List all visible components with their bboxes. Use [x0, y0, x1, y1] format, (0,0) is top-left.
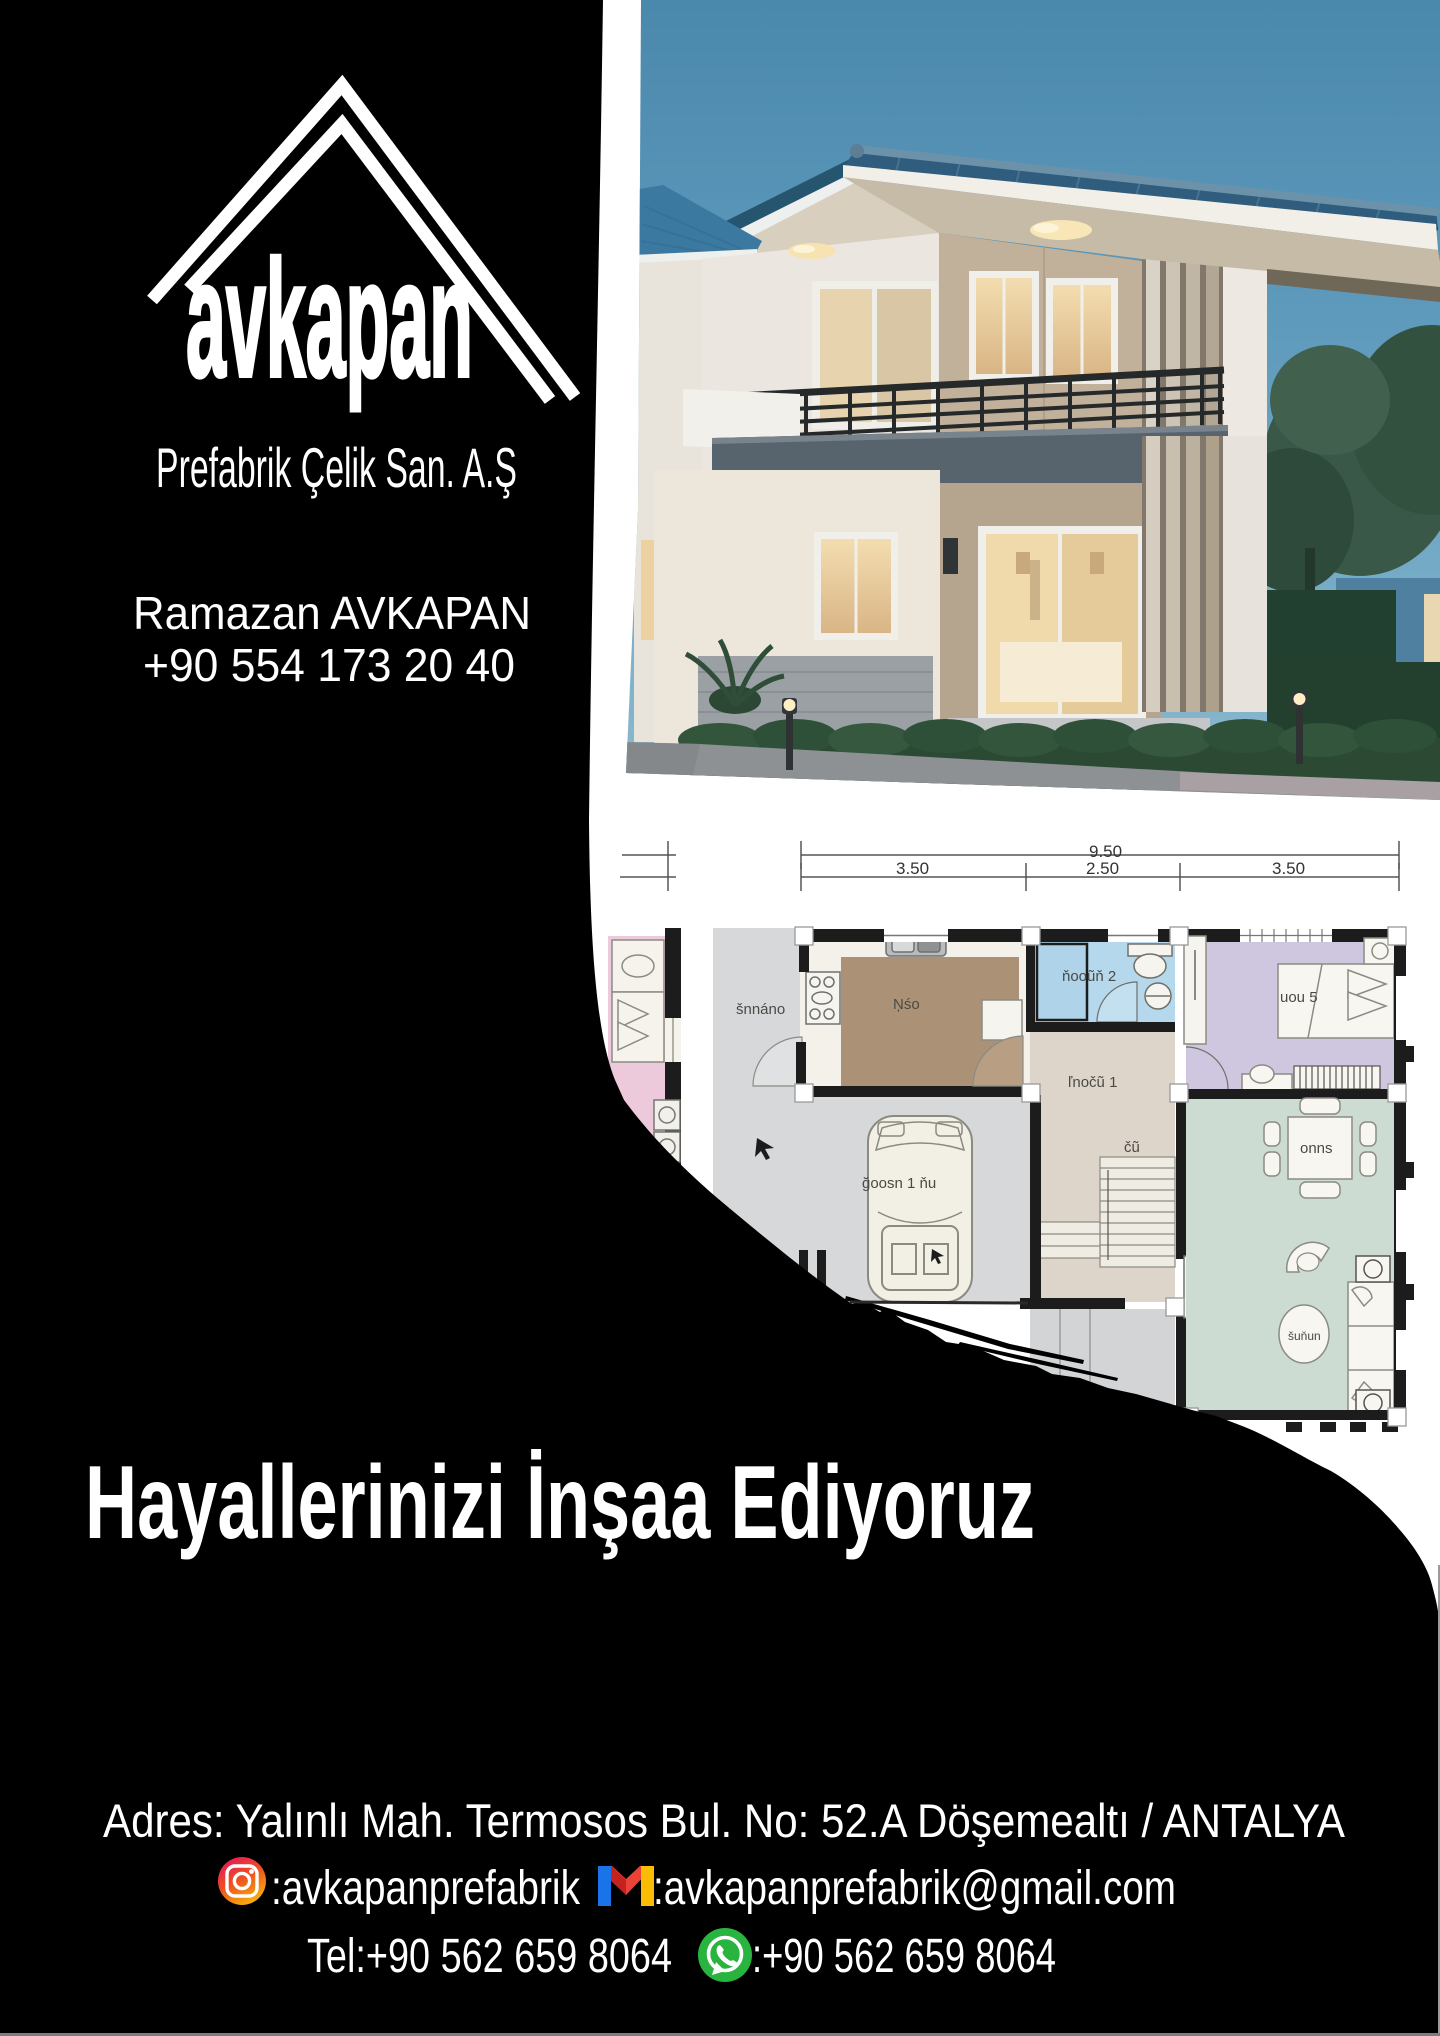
svg-text:3.50: 3.50 — [896, 859, 929, 878]
svg-text:čũ: čũ — [1124, 1139, 1140, 1156]
svg-text:Hayallerinizi İnşaa Ediyoruz: Hayallerinizi İnşaa Ediyoruz — [85, 1445, 1035, 1561]
svg-text:Prefabrik Çelik San. A.Ş: Prefabrik Çelik San. A.Ş — [156, 436, 517, 499]
svg-text:šuňun: šuňun — [1288, 1329, 1321, 1343]
svg-text:ľnočũ 1: ľnočũ 1 — [1068, 1074, 1117, 1091]
svg-text:ňooũň 2: ňooũň 2 — [1062, 968, 1116, 985]
svg-text:2.50: 2.50 — [1086, 859, 1119, 878]
svg-text:ğoosn 1 ňu: ğoosn 1 ňu — [862, 1175, 936, 1192]
svg-text:Ramazan AVKAPAN: Ramazan AVKAPAN — [133, 587, 531, 639]
svg-text:uou 5: uou 5 — [1280, 989, 1318, 1006]
svg-text::avkapanprefabrik: :avkapanprefabrik — [271, 1862, 581, 1915]
svg-text:3.50: 3.50 — [1272, 859, 1305, 878]
svg-text::avkapanprefabrik@gmail.com: :avkapanprefabrik@gmail.com — [653, 1862, 1176, 1915]
svg-text:avkapan: avkapan — [186, 227, 473, 412]
svg-text:Ņśo: Ņśo — [893, 996, 920, 1013]
svg-text::+90 562 659 8064: :+90 562 659 8064 — [752, 1930, 1056, 1983]
svg-text:onns: onns — [1300, 1140, 1333, 1157]
svg-text:+90 554 173 20 40: +90 554 173 20 40 — [143, 639, 515, 691]
svg-text:Tel:+90 562 659 8064: Tel:+90 562 659 8064 — [307, 1930, 672, 1983]
svg-text:šnnáno: šnnáno — [736, 1001, 785, 1018]
svg-text:Adres: Yalınlı Mah. Termosos B: Adres: Yalınlı Mah. Termosos Bul. No: 52… — [103, 1794, 1346, 1847]
